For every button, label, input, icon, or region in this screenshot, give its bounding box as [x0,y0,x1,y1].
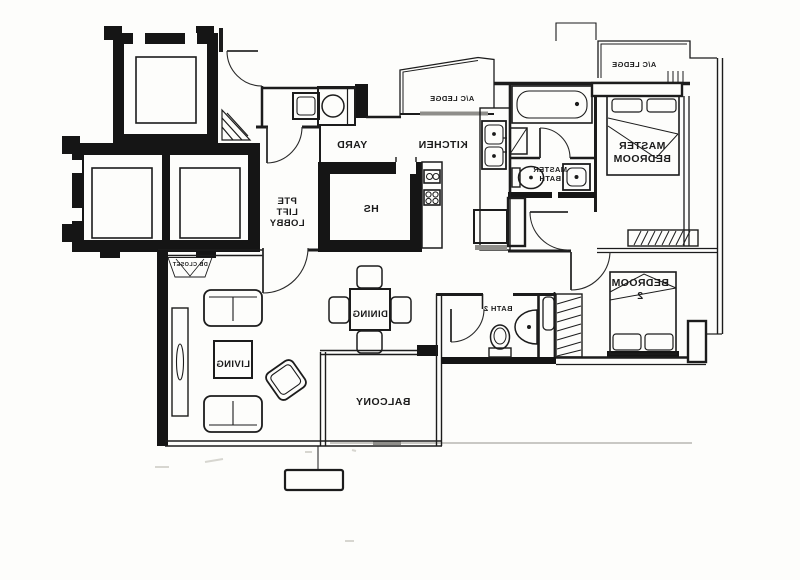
master-bath-label-2: BATH [539,174,561,183]
ac-ledge-master-label: A/C LEDGE [612,60,656,69]
lift1-door-notch [133,33,145,44]
master-headboard [592,83,682,96]
lift-lobby-label-1: PTE [277,196,297,207]
master-bath-label-1: MASTER [533,165,567,174]
yard-label: YARD [337,139,367,151]
ac-ledge-kitchen-label: A/C LEDGE [430,94,474,103]
floor-plan-page: A/C LEDGE A/C LEDGE YARD KITCHEN MASTER … [0,0,800,580]
dining-label: DINING [352,309,388,320]
floor-plan-drawing: A/C LEDGE A/C LEDGE YARD KITCHEN MASTER … [0,0,800,580]
lift-divider-wall [162,143,170,252]
living-label: LIVING [216,359,250,370]
db-closet-label: DB CLOSET [172,262,208,268]
lift-lobby-label-2: LIFT [276,207,298,218]
balcony-label: BALCONY [356,396,411,408]
lift1-door-notch [185,33,197,44]
bedroom2-label-1: BEDROOM [611,277,669,289]
lift2-door-notch [72,160,82,173]
lift-lobby-label-3: LOBBY [269,218,305,229]
kitchen-threshold [475,245,507,250]
hs-label: HS [363,203,378,215]
lift2-door-notch [72,208,82,221]
master-bedroom-label-1: MASTER [619,140,666,152]
kitchen-label: KITCHEN [418,139,467,151]
bath2-label: BATH 2 [484,304,513,313]
master-bedroom-label-2: BEDROOM [613,153,671,165]
bedroom2-label-2: 2 [637,290,643,302]
